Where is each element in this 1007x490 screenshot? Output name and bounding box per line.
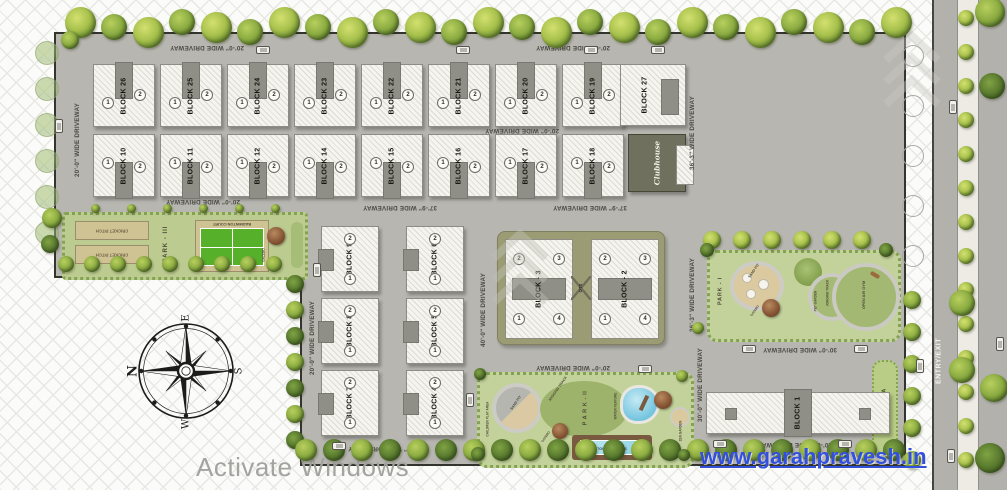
tree xyxy=(958,248,974,264)
tree xyxy=(41,235,59,253)
unit-2-badge: 2 xyxy=(429,377,441,389)
stair-core xyxy=(318,321,334,343)
tree xyxy=(902,245,924,267)
unit-2-badge: 2 xyxy=(402,89,414,101)
car-icon xyxy=(947,449,955,463)
unit-badge: 1 xyxy=(599,313,611,325)
tree xyxy=(35,149,59,173)
residential-block: BLOCK 421 xyxy=(406,370,464,436)
residential-block: BLOCK 1812 xyxy=(562,134,624,197)
unit-2-badge: 2 xyxy=(536,161,548,173)
tree xyxy=(240,256,256,272)
unit-2-badge: 2 xyxy=(344,377,356,389)
driveway-label: 20'-0" WIDE DRIVEWAY xyxy=(170,44,244,50)
block-label: BLOCK 8 xyxy=(347,315,354,348)
clubhouse-label: Clubhouse xyxy=(653,141,661,185)
tree xyxy=(91,204,100,213)
tree xyxy=(271,204,280,213)
road-median xyxy=(957,0,979,490)
stair-core xyxy=(661,79,679,115)
residential-block: BLOCK 1012 xyxy=(93,134,155,197)
tree xyxy=(949,290,975,316)
block-label: BLOCK 16 xyxy=(456,147,463,184)
tree xyxy=(201,12,232,43)
block-label: BLOCK 9 xyxy=(347,243,354,276)
car-icon xyxy=(55,119,63,133)
gazebo-label: GAZEBO xyxy=(262,248,265,261)
unit-2-badge: 2 xyxy=(603,89,615,101)
unit-1-badge: 1 xyxy=(344,345,356,357)
car-icon xyxy=(651,46,665,54)
unit-1-badge: 1 xyxy=(102,97,114,109)
tree xyxy=(849,19,875,45)
tree xyxy=(379,439,401,461)
tree xyxy=(902,95,924,117)
tree xyxy=(713,14,739,40)
block-label: BLOCK 18 xyxy=(590,147,597,184)
driveway-label: 30'-0" WIDE DRIVEWAY xyxy=(763,346,837,352)
car-icon xyxy=(949,100,957,114)
tree xyxy=(781,9,807,35)
block-label: BLOCK 14 xyxy=(322,147,329,184)
driveway-label: 36'-3" WIDE DRIVEWAY xyxy=(690,96,696,170)
badminton-court: BADMINTON COURT xyxy=(195,220,269,272)
tree xyxy=(35,41,59,65)
tree xyxy=(733,231,751,249)
center-courtyard: BLOCK - 3 2 3 1 4 BLOCK - 2 2 3 1 4 OTS xyxy=(497,231,665,345)
tree xyxy=(35,77,59,101)
tree xyxy=(975,443,1005,473)
block-1: BLOCK 1 xyxy=(706,392,890,434)
site-plan-canvas: BLOCK 2612BLOCK 2512BLOCK 2412BLOCK 2312… xyxy=(0,0,1007,490)
cricket-pitch-label: CRICKET PITCH xyxy=(96,228,128,232)
unit-2-badge: 2 xyxy=(402,161,414,173)
tree xyxy=(949,357,975,383)
clubhouse-building: Clubhouse xyxy=(628,134,686,192)
water-feature-label: WATER FEATURE xyxy=(614,393,617,420)
residential-block: BLOCK 2312 xyxy=(294,64,356,127)
residential-block: BLOCK 721 xyxy=(321,370,379,436)
unit-1-badge: 1 xyxy=(344,417,356,429)
block-label: BLOCK 23 xyxy=(322,77,329,114)
tree xyxy=(958,452,974,468)
tree xyxy=(547,439,569,461)
stair-core xyxy=(859,408,871,420)
tree xyxy=(235,204,244,213)
ots-marker: OTS xyxy=(571,276,591,300)
gazebo-label: GAZEBO xyxy=(750,305,760,317)
residential-block: BLOCK 1112 xyxy=(160,134,222,197)
tree xyxy=(700,243,714,257)
stair-core xyxy=(318,393,334,415)
block-label: BLOCK 26 xyxy=(121,77,128,114)
residential-block: BLOCK 2412 xyxy=(227,64,289,127)
tree xyxy=(958,214,974,230)
unit-2-badge: 2 xyxy=(429,305,441,317)
tree xyxy=(110,256,126,272)
road-edge-line xyxy=(932,0,934,490)
unit-badge: 2 xyxy=(513,253,525,265)
block-2: BLOCK - 2 2 3 1 4 xyxy=(591,239,659,339)
gazebo xyxy=(654,391,672,409)
tree xyxy=(902,195,924,217)
block-label: BLOCK 20 xyxy=(523,77,530,114)
unit-2-badge: 2 xyxy=(469,161,481,173)
water-feature xyxy=(620,385,660,424)
tree xyxy=(763,231,781,249)
unit-1-badge: 1 xyxy=(504,97,516,109)
tree xyxy=(286,275,304,293)
unit-1-badge: 1 xyxy=(169,157,181,169)
stair-core xyxy=(403,321,419,343)
tree xyxy=(127,204,136,213)
unit-badge: 3 xyxy=(639,253,651,265)
block-label: BLOCK 12 xyxy=(255,147,262,184)
car-icon xyxy=(742,345,756,353)
stair-core xyxy=(403,393,419,415)
tree xyxy=(958,418,974,434)
compass-e: E xyxy=(181,314,192,321)
tree xyxy=(42,208,62,228)
residential-block: BLOCK 1212 xyxy=(227,134,289,197)
unit-1-badge: 1 xyxy=(370,157,382,169)
tree xyxy=(903,387,921,405)
park-2-name: P A R K - II xyxy=(583,391,589,426)
tree xyxy=(286,405,304,423)
tree xyxy=(84,256,100,272)
tree xyxy=(473,7,504,38)
unit-badge: 4 xyxy=(553,313,565,325)
block-label: BLOCK 11 xyxy=(188,147,195,184)
car-icon xyxy=(313,263,321,277)
tree xyxy=(903,323,921,341)
driveway-label: 37'-9" WIDE DRIVEWAY xyxy=(363,204,437,210)
unit-1-badge: 1 xyxy=(102,157,114,169)
driveway-label: 20'-0" WIDE DRIVEWAY xyxy=(310,301,316,375)
tree xyxy=(269,7,300,38)
car-icon xyxy=(916,359,924,373)
unit-2-badge: 2 xyxy=(344,305,356,317)
unit-1-badge: 1 xyxy=(571,97,583,109)
tree xyxy=(958,112,974,128)
tree xyxy=(813,12,844,43)
unit-2-badge: 2 xyxy=(536,89,548,101)
driveway-label: 36'-3" WIDE DRIVEWAY xyxy=(690,258,696,332)
tree xyxy=(903,291,921,309)
block-label: BLOCK 19 xyxy=(590,77,597,114)
residential-block: BLOCK 1412 xyxy=(294,134,356,197)
driveway-label: 20'-0" WIDE DRIVEWAY xyxy=(75,103,81,177)
open-air-gym-circle: OPEN AIR GYM xyxy=(832,263,900,331)
residential-block: BLOCK 2012 xyxy=(495,64,557,127)
block-label: BLOCK 4 xyxy=(432,387,439,420)
tree xyxy=(35,185,59,209)
car-icon xyxy=(466,393,474,407)
tree xyxy=(678,449,690,461)
tree xyxy=(405,12,436,43)
tree xyxy=(286,353,304,371)
block-label: BLOCK 10 xyxy=(121,147,128,184)
tree xyxy=(61,31,79,49)
tree xyxy=(286,327,304,345)
tree xyxy=(958,180,974,196)
block-label: BLOCK 21 xyxy=(456,77,463,114)
tree xyxy=(541,17,572,48)
tree xyxy=(645,19,671,45)
unit-2-badge: 2 xyxy=(469,89,481,101)
tree xyxy=(881,7,912,38)
tree xyxy=(902,45,924,67)
open-air-gym-label: OPEN AIR GYM xyxy=(862,281,866,309)
residential-block: BLOCK 2612 xyxy=(93,64,155,127)
residential-block: BLOCK 1712 xyxy=(495,134,557,197)
driveway-label: 30'-0" WIDE DRIVEWAY xyxy=(698,348,704,422)
children-play-label: CHILDREN PLAY AREA xyxy=(486,402,489,437)
unit-badge: 4 xyxy=(639,313,651,325)
tree xyxy=(958,384,974,400)
unit-1-badge: 1 xyxy=(571,157,583,169)
children-play-area xyxy=(492,383,542,433)
residential-block: BLOCK 1612 xyxy=(428,134,490,197)
tree xyxy=(199,204,208,213)
residential-block: BLOCK 2212 xyxy=(361,64,423,127)
block-label: BLOCK 22 xyxy=(389,77,396,114)
driveway-label: 20'-0" WIDE DRIVEWAY xyxy=(485,127,559,133)
unit-1-badge: 1 xyxy=(344,273,356,285)
entry-exit-label: ENTRY/EXIT xyxy=(936,338,943,384)
tree xyxy=(133,17,164,48)
block-label: BLOCK 6 xyxy=(432,243,439,276)
tree xyxy=(474,368,486,380)
mushroom-umbrella xyxy=(758,279,769,290)
block-27: BLOCK 27 xyxy=(620,64,686,126)
jogging-track-label: JOGGING TRACK xyxy=(826,280,829,307)
tree xyxy=(603,439,625,461)
block-label: BLOCK - 2 xyxy=(622,270,629,308)
tree xyxy=(286,301,304,319)
unit-1-badge: 1 xyxy=(303,157,315,169)
car-icon xyxy=(584,46,598,54)
compass-n: N xyxy=(127,365,141,377)
block-label: BLOCK 25 xyxy=(188,77,195,114)
residential-block: BLOCK 1512 xyxy=(361,134,423,197)
tree xyxy=(853,231,871,249)
tree xyxy=(979,73,1005,99)
tree xyxy=(575,439,597,461)
tree xyxy=(286,379,304,397)
tree xyxy=(373,9,399,35)
tree xyxy=(609,12,640,43)
block-label: BLOCK - 3 xyxy=(536,270,543,308)
unit-badge: 3 xyxy=(553,253,565,265)
driveway-label: 20'-0" WIDE DRIVEWAY xyxy=(536,364,610,370)
gazebo xyxy=(762,299,780,317)
block-label: BLOCK 1 xyxy=(795,397,802,430)
tree xyxy=(471,447,485,461)
tree xyxy=(980,374,1007,402)
zen-garden-label: ZEN GARDEN xyxy=(679,421,682,442)
tree xyxy=(958,44,974,60)
block-label: BLOCK 5 xyxy=(432,315,439,348)
residential-block: BLOCK 1912 xyxy=(562,64,624,127)
unit-2-badge: 2 xyxy=(268,89,280,101)
tree xyxy=(237,19,263,45)
block-3: BLOCK - 3 2 3 1 4 xyxy=(505,239,573,339)
tree xyxy=(295,439,317,461)
tree xyxy=(188,256,204,272)
tree xyxy=(266,256,282,272)
tree xyxy=(136,256,152,272)
tree xyxy=(441,19,467,45)
watermark-link[interactable]: www.garahpravesh.in xyxy=(700,446,927,468)
ots-label: OTS xyxy=(579,284,583,293)
unit-1-badge: 1 xyxy=(437,97,449,109)
tree xyxy=(958,78,974,94)
block-label: BLOCK 24 xyxy=(255,77,262,114)
tree xyxy=(509,14,535,40)
car-icon xyxy=(456,46,470,54)
residential-block: BLOCK 2512 xyxy=(160,64,222,127)
unit-1-badge: 1 xyxy=(429,345,441,357)
block-label: BLOCK 15 xyxy=(389,147,396,184)
unit-2-badge: 2 xyxy=(268,161,280,173)
park-1: PARK - I SAND PIT GAZEBO PET GARDEN JOGG… xyxy=(707,250,901,342)
tree xyxy=(519,439,541,461)
unit-1-badge: 1 xyxy=(504,157,516,169)
gazebo xyxy=(552,423,568,439)
car-icon xyxy=(256,46,270,54)
block-label: BLOCK 17 xyxy=(523,147,530,184)
tree xyxy=(879,243,893,257)
car-icon xyxy=(332,442,346,450)
tree xyxy=(676,370,688,382)
unit-1-badge: 1 xyxy=(236,97,248,109)
tree xyxy=(745,17,776,48)
tree xyxy=(903,419,921,437)
pet-garden-label: PET GARDEN xyxy=(814,291,817,312)
unit-1-badge: 1 xyxy=(370,97,382,109)
tree xyxy=(958,316,974,332)
mushroom-umbrella xyxy=(746,289,756,299)
stair-core xyxy=(725,408,737,420)
unit-1-badge: 1 xyxy=(429,273,441,285)
unit-2-badge: 2 xyxy=(134,161,146,173)
residential-block: BLOCK 921 xyxy=(321,226,379,292)
unit-2-badge: 2 xyxy=(335,161,347,173)
tree xyxy=(101,14,127,40)
residential-block: BLOCK 2112 xyxy=(428,64,490,127)
pond-deck xyxy=(638,394,648,410)
unit-2-badge: 2 xyxy=(429,233,441,245)
unit-2-badge: 2 xyxy=(201,161,213,173)
car-icon xyxy=(996,337,1004,351)
tree xyxy=(958,10,974,26)
tree xyxy=(577,9,603,35)
unit-1-badge: 1 xyxy=(236,157,248,169)
tree xyxy=(793,231,811,249)
driveway-label: 40'-0" WIDE DRIVEWAY xyxy=(481,273,487,347)
gazebo xyxy=(267,227,285,245)
unit-1-badge: 1 xyxy=(303,97,315,109)
block-label: BLOCK 7 xyxy=(347,387,354,420)
cricket-pitch-label: CRICKET PITCH xyxy=(96,252,128,256)
driveway-label: 37'-9" WIDE DRIVEWAY xyxy=(553,204,627,210)
residential-block: BLOCK 621 xyxy=(406,226,464,292)
tree xyxy=(351,439,373,461)
planting-bed xyxy=(291,222,303,268)
tree xyxy=(958,146,974,162)
badminton-label: BADMINTON COURT xyxy=(213,222,251,226)
residential-block: BLOCK 521 xyxy=(406,298,464,364)
stair-core xyxy=(403,249,419,271)
tree xyxy=(677,7,708,38)
tree xyxy=(435,439,457,461)
tree xyxy=(902,145,924,167)
compass-rose: N E S W xyxy=(127,312,245,430)
tree xyxy=(631,439,653,461)
compass-w: W xyxy=(181,418,192,429)
car-icon xyxy=(638,365,652,373)
tree xyxy=(305,14,331,40)
cricket-pitch: CRICKET PITCH xyxy=(75,221,149,240)
tree xyxy=(169,9,195,35)
unit-2-badge: 2 xyxy=(603,161,615,173)
unit-2-badge: 2 xyxy=(134,89,146,101)
tree xyxy=(823,231,841,249)
tree xyxy=(407,439,429,461)
tree xyxy=(162,256,178,272)
unit-badge: 1 xyxy=(513,313,525,325)
tree xyxy=(214,256,230,272)
tree xyxy=(163,204,172,213)
tree xyxy=(337,17,368,48)
unit-2-badge: 2 xyxy=(201,89,213,101)
unit-1-badge: 1 xyxy=(429,417,441,429)
tree xyxy=(491,439,513,461)
unit-2-badge: 2 xyxy=(335,89,347,101)
unit-badge: 2 xyxy=(599,253,611,265)
unit-1-badge: 1 xyxy=(169,97,181,109)
block-label: BLOCK 27 xyxy=(642,76,649,113)
park-1-name: PARK - I xyxy=(718,277,724,305)
tree xyxy=(58,256,74,272)
unit-1-badge: 1 xyxy=(437,157,449,169)
residential-block: BLOCK 821 xyxy=(321,298,379,364)
unit-2-badge: 2 xyxy=(344,233,356,245)
car-icon xyxy=(854,345,868,353)
tree xyxy=(692,322,704,334)
compass-s: S xyxy=(234,367,245,374)
